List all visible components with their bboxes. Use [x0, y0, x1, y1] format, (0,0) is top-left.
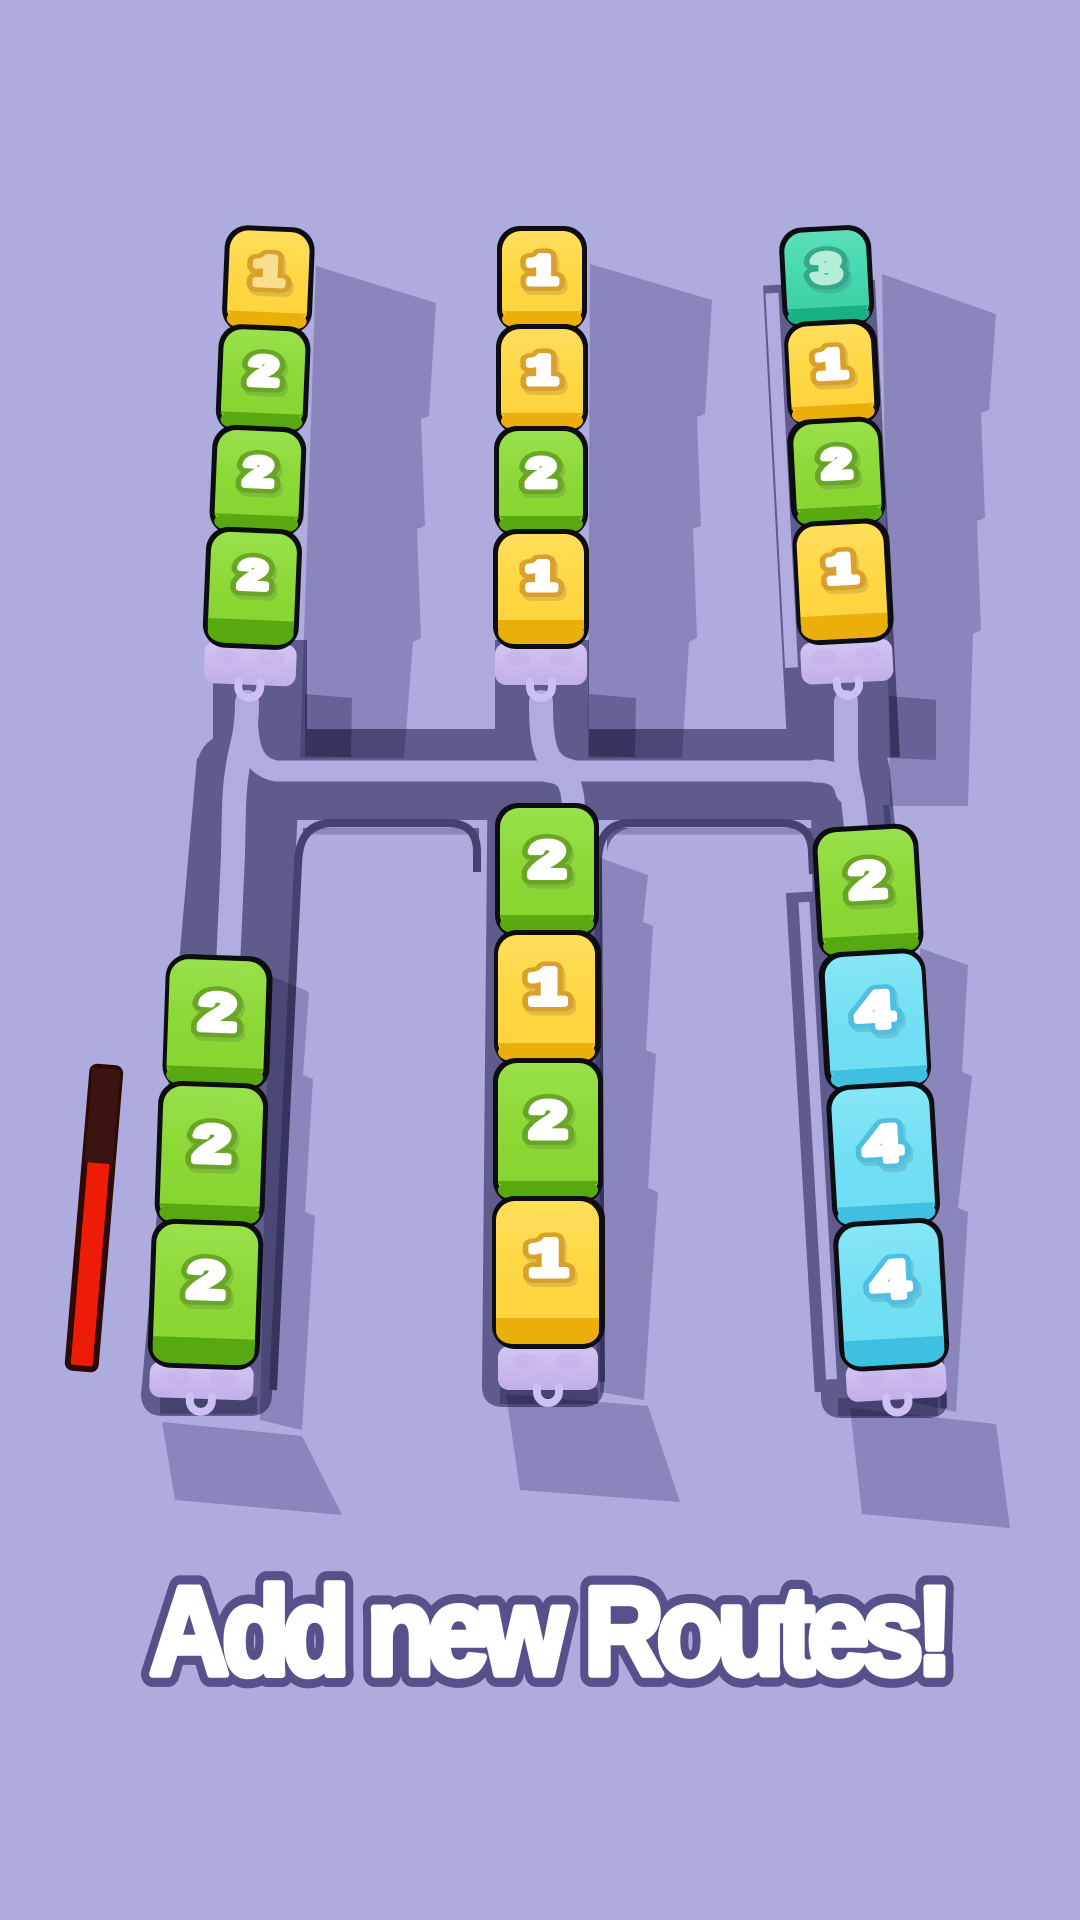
svg-text:1: 1: [526, 249, 558, 296]
svg-text:2: 2: [820, 442, 854, 491]
svg-text:2: 2: [247, 350, 281, 399]
svg-text:1: 1: [528, 1232, 569, 1293]
svg-text:2: 2: [846, 853, 889, 915]
svg-text:1: 1: [525, 555, 557, 602]
svg-text:2: 2: [525, 452, 557, 499]
svg-text:4: 4: [868, 1252, 912, 1315]
svg-text:1: 1: [526, 349, 558, 396]
svg-text:2: 2: [184, 1253, 227, 1315]
svg-text:2: 2: [528, 1094, 569, 1155]
svg-text:1: 1: [814, 343, 848, 392]
svg-text:2: 2: [236, 553, 270, 602]
svg-text:2: 2: [527, 834, 567, 894]
svg-text:2: 2: [241, 451, 275, 500]
svg-text:1: 1: [825, 547, 859, 596]
svg-text:1: 1: [527, 961, 567, 1021]
svg-text:4: 4: [861, 1117, 904, 1179]
svg-text:2: 2: [190, 1117, 233, 1179]
svg-text:1: 1: [252, 250, 286, 299]
svg-text:2: 2: [196, 985, 239, 1047]
svg-text:Add new Routes!: Add new Routes!: [150, 1562, 947, 1701]
svg-text:3: 3: [809, 247, 843, 296]
svg-text:4: 4: [853, 983, 896, 1045]
